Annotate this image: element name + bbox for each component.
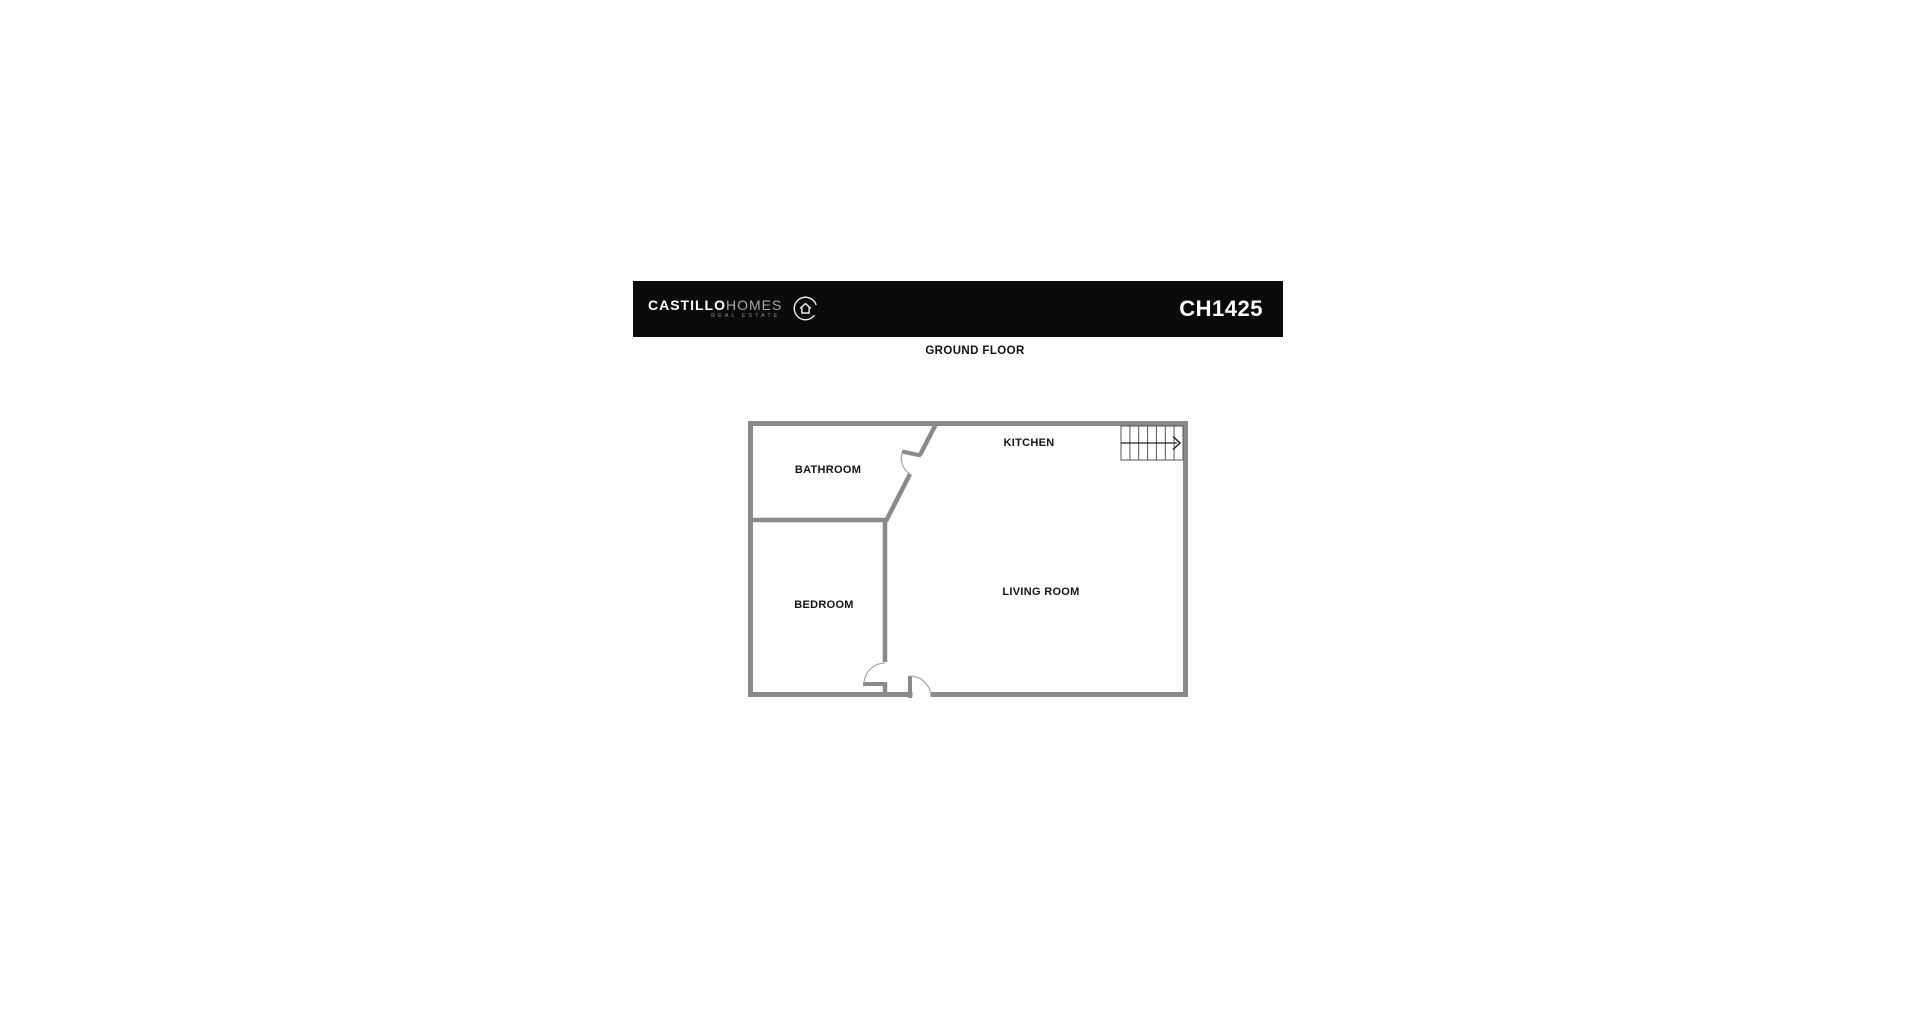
bedroom-door-arc <box>864 663 885 684</box>
brand-name: CASTILLO HOMES <box>648 298 782 312</box>
room-label-bedroom: BEDROOM <box>794 599 854 611</box>
bathroom-door-arc <box>901 453 910 474</box>
brand-tagline: REAL ESTATE <box>711 314 780 320</box>
floorplan-svg <box>740 410 1200 710</box>
brand-logo: CASTILLO HOMES REAL ESTATE <box>648 297 819 322</box>
brand-name-bold: CASTILLO <box>648 298 726 312</box>
room-label-bathroom: BATHROOM <box>795 464 861 476</box>
page: CASTILLO HOMES REAL ESTATE CH1425 GROUND… <box>0 0 1920 1024</box>
room-label-living-room: LIVING ROOM <box>1002 586 1079 598</box>
brand-name-light: HOMES <box>726 298 782 312</box>
listing-code: CH1425 <box>1179 296 1263 322</box>
house-logo-icon <box>792 295 819 322</box>
floorplan: BATHROOM KITCHEN BEDROOM LIVING ROOM <box>740 410 1200 710</box>
header-bar: CASTILLO HOMES REAL ESTATE CH1425 <box>633 281 1283 337</box>
entry-door-gap <box>913 690 932 701</box>
wall-diagonal-upper <box>920 422 937 455</box>
floor-title: GROUND FLOOR <box>875 345 1075 357</box>
room-label-kitchen: KITCHEN <box>1004 437 1055 449</box>
brand-text: CASTILLO HOMES REAL ESTATE <box>648 298 782 320</box>
staircase-icon <box>1121 426 1183 460</box>
wall-diagonal-lower <box>886 474 910 521</box>
bathroom-door-leaf <box>902 452 921 456</box>
